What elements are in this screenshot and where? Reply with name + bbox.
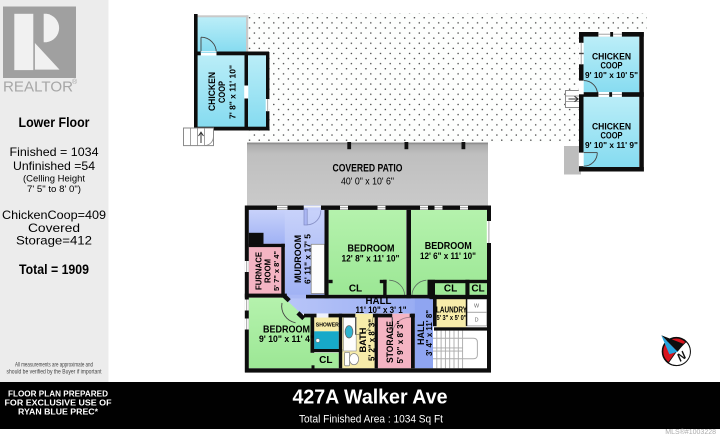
svg-text:CL: CL xyxy=(349,284,362,295)
svg-text:FURNACE: FURNACE xyxy=(254,251,263,290)
svg-text:5' 2" x 8' 3": 5' 2" x 8' 3" xyxy=(366,319,376,361)
svg-text:RYAN BLUE PREC*: RYAN BLUE PREC* xyxy=(18,407,99,417)
svg-text:427A Walker Ave: 427A Walker Ave xyxy=(293,387,448,409)
svg-text:5' 9" x 8' 3": 5' 9" x 8' 3" xyxy=(395,321,405,364)
svg-text:Storage=412: Storage=412 xyxy=(16,234,92,248)
svg-text:40' 0" x 10' 6": 40' 0" x 10' 6" xyxy=(341,177,394,188)
svg-text:STORAGE: STORAGE xyxy=(384,321,395,363)
svg-text:6' 11" x 17' 5: 6' 11" x 17' 5 xyxy=(303,234,313,284)
svg-text:Lower Floor: Lower Floor xyxy=(19,115,91,130)
svg-text:Finished = 1034: Finished = 1034 xyxy=(10,145,99,159)
svg-text:ROOM: ROOM xyxy=(263,259,272,283)
svg-text:Total Finished Area : 1034 Sq: Total Finished Area : 1034 Sq Ft xyxy=(299,414,443,426)
svg-text:Total = 1909: Total = 1909 xyxy=(19,262,89,277)
svg-text:5' 7" x 8' 4": 5' 7" x 8' 4" xyxy=(272,251,281,291)
svg-text:All measurements are approxima: All measurements are approximate and xyxy=(15,363,93,369)
svg-text:12' 6" x 11' 10": 12' 6" x 11' 10" xyxy=(420,250,476,261)
svg-text:CL: CL xyxy=(471,284,484,295)
svg-text:ChickenCoop=409: ChickenCoop=409 xyxy=(2,208,106,222)
svg-text:COVERED PATIO: COVERED PATIO xyxy=(333,163,403,175)
svg-text:9' 10" x 10' 5": 9' 10" x 10' 5" xyxy=(585,70,638,80)
svg-text:3' 4" x 11' 8": 3' 4" x 11' 8" xyxy=(424,310,434,356)
svg-text:(Celling Height: (Celling Height xyxy=(23,174,85,185)
svg-text:SHOWER: SHOWER xyxy=(316,323,340,329)
svg-text:5' 3" x 5' 0": 5' 3" x 5' 0" xyxy=(437,313,467,322)
svg-text:W: W xyxy=(474,304,480,310)
svg-text:REALTOR: REALTOR xyxy=(3,80,73,96)
svg-text:®: ® xyxy=(72,78,78,86)
svg-text:7' 8" x 11' 10": 7' 8" x 11' 10" xyxy=(228,65,238,119)
svg-text:7' 5" to 8' 0"): 7' 5" to 8' 0") xyxy=(27,184,81,195)
svg-text:12' 8" x 11' 10": 12' 8" x 11' 10" xyxy=(342,253,400,264)
svg-text:should be verified by the Buye: should be verified by the Buyer if impor… xyxy=(7,370,102,376)
svg-text:MUDROOM: MUDROOM xyxy=(292,235,303,283)
svg-text:COOP: COOP xyxy=(601,61,623,71)
svg-text:D: D xyxy=(475,317,479,323)
svg-text:9' 10" x 11' 9": 9' 10" x 11' 9" xyxy=(585,140,638,150)
svg-text:9' 10" x 11' 4": 9' 10" x 11' 4" xyxy=(259,333,314,344)
svg-text:CL: CL xyxy=(319,355,332,366)
svg-text:COOP: COOP xyxy=(217,81,227,103)
svg-text:11' 10" x 3' 1": 11' 10" x 3' 1" xyxy=(356,305,407,315)
svg-text:CHICKEN: CHICKEN xyxy=(207,72,217,111)
svg-text:MLS®#1003228: MLS®#1003228 xyxy=(665,428,716,435)
svg-text:Unfinished =54: Unfinished =54 xyxy=(13,159,95,173)
svg-text:CL: CL xyxy=(444,284,457,295)
svg-text:COOP: COOP xyxy=(601,131,623,141)
